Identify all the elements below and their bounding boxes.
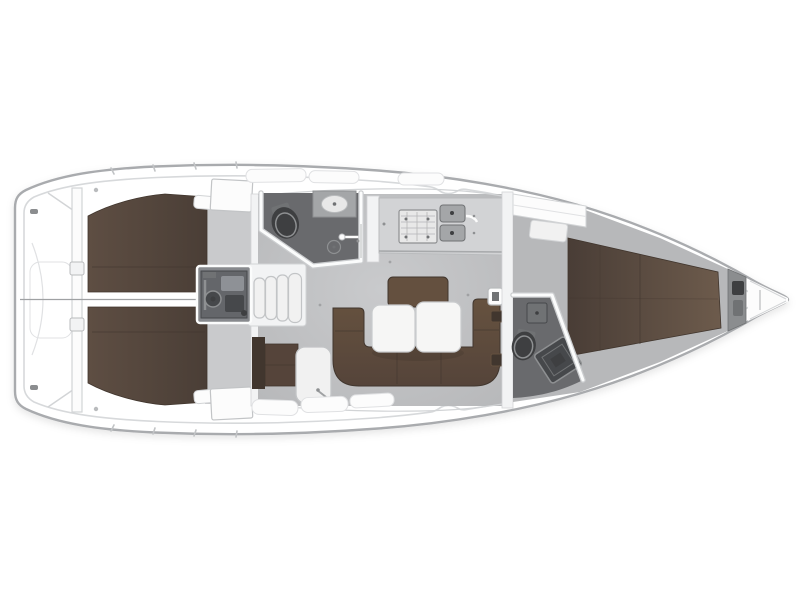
- step-locker-box: [296, 347, 331, 403]
- shower-head: [339, 234, 345, 240]
- shower-drain-dot: [333, 246, 336, 249]
- locker-latch-dot: [316, 388, 320, 392]
- salon-table-leaf-right: [416, 302, 461, 352]
- fridge-dot-2: [473, 232, 476, 235]
- floor-plan-svg: [0, 0, 800, 599]
- deck-hatch-bottom-1: [252, 399, 298, 416]
- windlass: [732, 281, 744, 295]
- bulkhead-latch-bottom: [491, 354, 503, 366]
- winch-base-port: [94, 188, 98, 192]
- nav-seat-back: [252, 337, 265, 389]
- counter-front-edge: [379, 251, 503, 252]
- aft-cabin-starboard-berth: [88, 307, 207, 405]
- galley-side-cabinet: [367, 196, 379, 262]
- salon-table-leaf-left: [372, 305, 415, 352]
- deck-hatch-bottom-3: [350, 393, 395, 408]
- mast-post-slot: [492, 292, 499, 301]
- companionway: [197, 264, 306, 326]
- forward-bulkhead: [502, 192, 513, 408]
- forward-basin-drain: [535, 311, 539, 315]
- counter-dot: [383, 223, 386, 226]
- fridge-dot-1: [473, 215, 476, 218]
- deck-hatch-bottom-2: [301, 396, 348, 413]
- winch-base-starboard: [94, 407, 98, 411]
- stove: [399, 210, 437, 243]
- bow-locker-floor: [748, 279, 788, 321]
- wardrobe-starboard: [210, 387, 253, 420]
- galley: [367, 196, 503, 262]
- forward-shelf-box: [529, 220, 568, 242]
- transom-hinge-bottom: [70, 318, 84, 331]
- anchor-locker: [728, 269, 788, 331]
- step-1: [254, 278, 265, 318]
- deck-hatch-top-2: [309, 171, 359, 184]
- deck-hatch-top-3: [398, 173, 444, 185]
- step-3: [277, 275, 288, 321]
- stern-cleat-port: [30, 209, 38, 214]
- deck-hatch-top-1: [246, 168, 306, 182]
- engine-compartment: [197, 266, 251, 323]
- windlass-motor: [733, 300, 743, 316]
- transom-hinge-top: [70, 262, 84, 275]
- bulkhead-latch-top: [491, 311, 503, 322]
- floor-plan: [0, 0, 800, 599]
- step-4: [289, 274, 302, 323]
- companionway-steps: [254, 274, 302, 323]
- aft-cabin-port-berth: [88, 194, 207, 292]
- step-2: [266, 277, 277, 320]
- basin-drain: [333, 202, 337, 206]
- stern-cleat-starboard: [30, 385, 38, 390]
- wardrobe-port: [210, 179, 253, 212]
- aft-head-door-handle: [357, 240, 360, 243]
